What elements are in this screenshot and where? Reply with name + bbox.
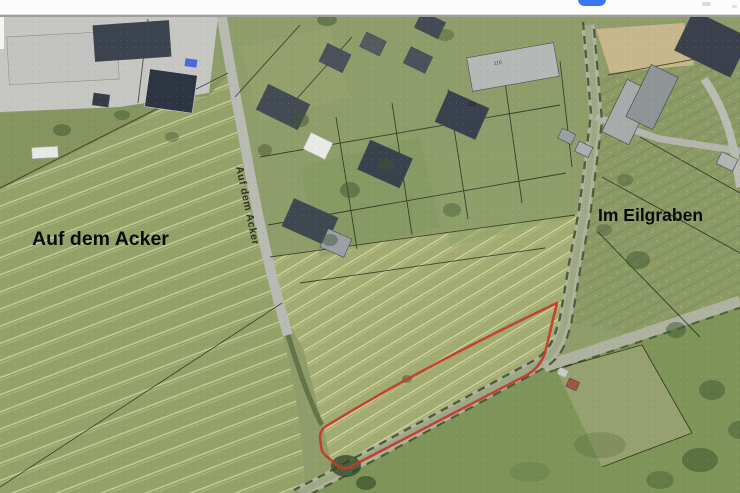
- aerial-map-svg: Auf dem Acker Im Eilgraben Auf dem Acker…: [0, 17, 740, 493]
- aerial-map-image: Auf dem Acker Im Eilgraben Auf dem Acker…: [0, 17, 740, 493]
- photo-grain: [0, 17, 740, 493]
- toolbar-ghost-mark2-icon: [732, 5, 737, 8]
- label-field-auf-dem-acker: Auf dem Acker: [32, 228, 169, 250]
- toolbar-divider: [0, 15, 740, 17]
- app-window: Auf dem Acker Im Eilgraben Auf dem Acker…: [0, 0, 740, 493]
- window-toolbar: [0, 0, 740, 15]
- toolbar-ghost-mark-icon: [702, 2, 711, 6]
- toolbar-primary-button[interactable]: [578, 0, 606, 6]
- label-house-number: 11b: [468, 102, 476, 108]
- label-area-im-eilgraben: Im Eilgraben: [598, 205, 703, 225]
